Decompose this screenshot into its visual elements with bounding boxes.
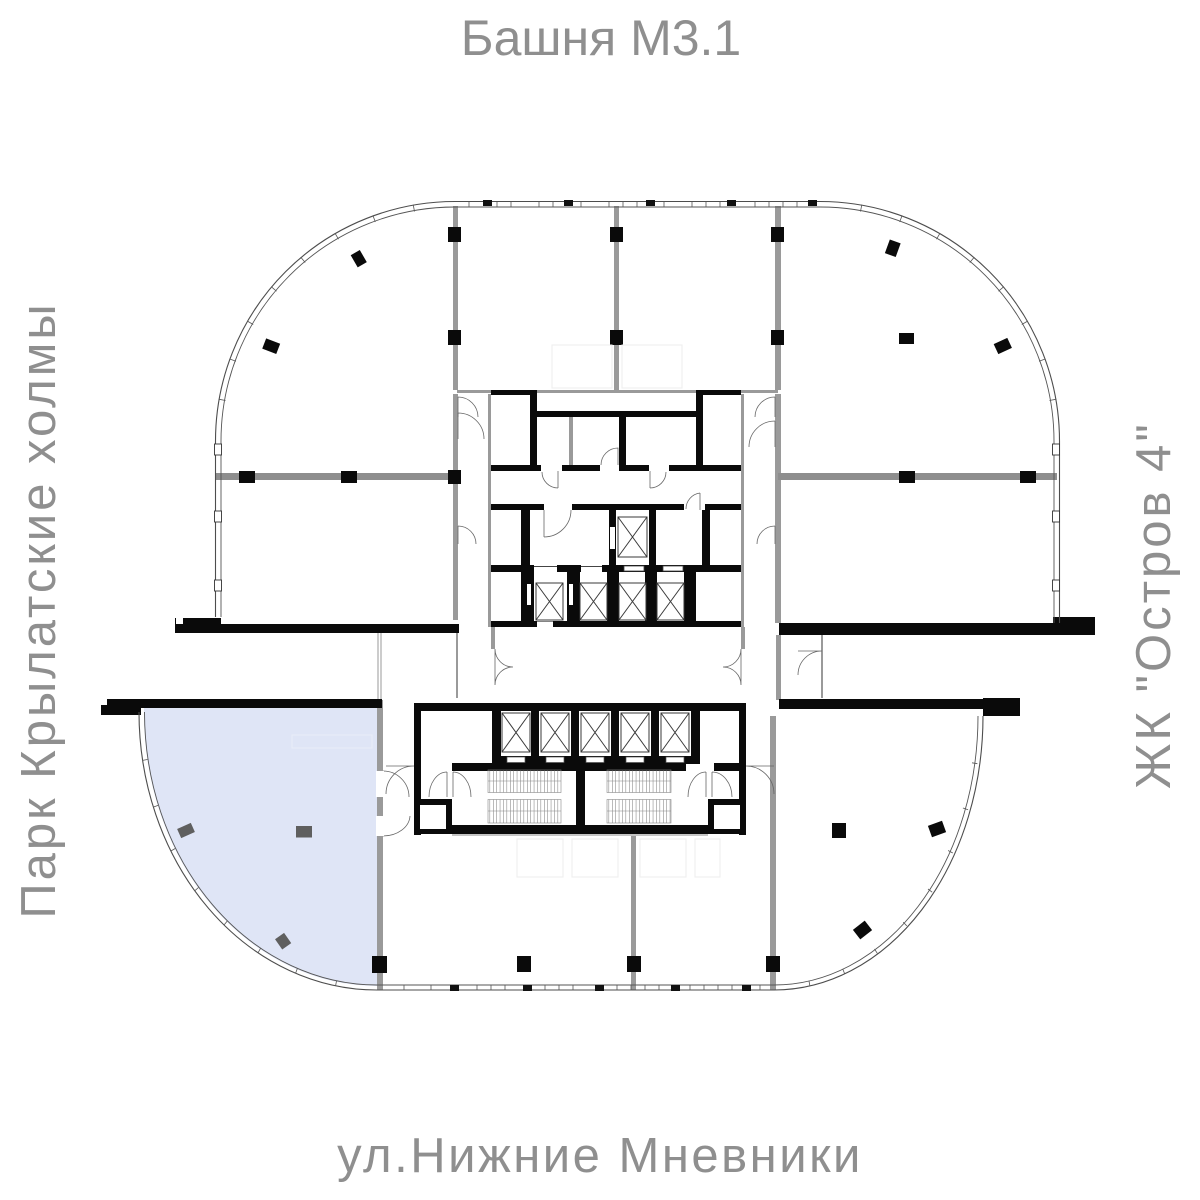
svg-text:Парк Крылатские холмы: Парк Крылатские холмы — [12, 301, 66, 918]
svg-text:ЖК "Остров 4": ЖК "Остров 4" — [1127, 421, 1181, 789]
svg-text:ул.Нижние Мневники: ул.Нижние Мневники — [337, 1129, 863, 1183]
svg-text:Башня М3.1: Башня М3.1 — [461, 10, 741, 66]
